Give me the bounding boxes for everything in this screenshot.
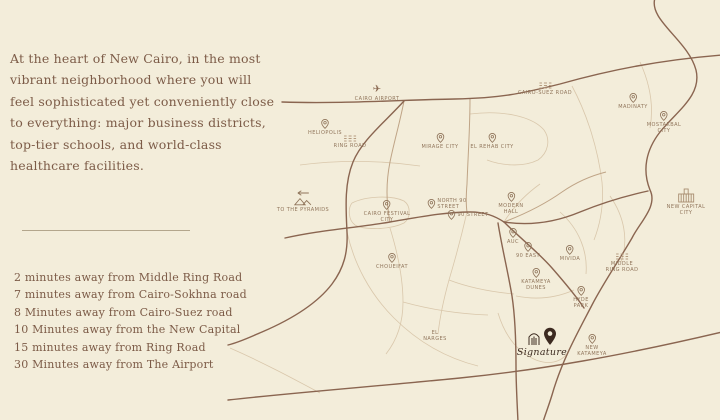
project-name: Signature xyxy=(517,347,567,358)
map-label-text: MIDDLERING ROAD xyxy=(606,261,639,273)
map-label-modern-hall: MODERNHALL xyxy=(498,192,523,215)
location-pin-icon xyxy=(509,228,517,238)
distance-item-3: 10 Minutes away from the New Capital xyxy=(14,321,247,338)
location-pin-icon xyxy=(507,192,515,202)
map-label-mirage-city: MIRAGE CITY xyxy=(421,133,458,150)
location-pin-icon xyxy=(524,242,532,252)
map-label-text: MADINATY xyxy=(618,104,648,110)
road-dashes-icon xyxy=(539,82,552,89)
road-dashes-icon xyxy=(343,135,356,142)
map-label-heliopolis: HELIOPOLIS xyxy=(308,119,342,136)
map-label-hyde-park: HYDEPARK xyxy=(573,286,589,309)
west-arrow-icon xyxy=(296,190,310,196)
location-pin-icon xyxy=(447,210,455,220)
intro-line-1: vibrant neighborhood where you will xyxy=(10,69,274,90)
map-label-text: KATAMEYADUNES xyxy=(521,279,550,291)
distance-item-4: 15 minutes away from Ring Road xyxy=(14,339,247,356)
distance-list: 2 minutes away from Middle Ring Road7 mi… xyxy=(14,269,247,373)
distance-item-0: 2 minutes away from Middle Ring Road xyxy=(14,269,247,286)
intro-line-3: to everything: major business districts, xyxy=(10,112,274,133)
map-label-text: ELNARGES xyxy=(423,330,447,342)
map-label-text: TO THE PYRAMIDS xyxy=(277,207,329,213)
map-label-text: MODERNHALL xyxy=(498,203,523,215)
divider-line xyxy=(22,230,190,231)
intro-line-2: feel sophisticated yet conveniently clos… xyxy=(10,91,274,112)
map-label-text: NEW CAPITALCITY xyxy=(667,204,706,216)
location-pin-icon xyxy=(436,133,444,143)
location-pin-icon xyxy=(488,133,496,143)
intro-paragraph: At the heart of New Cairo, in the mostvi… xyxy=(10,48,274,176)
distance-item-5: 30 Minutes away from The Airport xyxy=(14,356,247,373)
location-pin-icon xyxy=(427,199,435,209)
project-marker: Signature xyxy=(522,327,562,358)
map-label-text: RING ROAD xyxy=(334,143,367,149)
map-label-text: EL REHAB CITY xyxy=(470,144,513,150)
map-label-ring-road: RING ROAD xyxy=(334,135,367,149)
map-label-madinaty: MADINATY xyxy=(618,93,648,110)
map-label-text: CHOUEIFAT xyxy=(376,264,408,270)
location-pin-icon xyxy=(321,119,329,129)
map-label-text: HYDEPARK xyxy=(573,297,589,309)
airplane-icon: ✈ xyxy=(373,85,382,95)
map-label-text: NEWKATAMEYA xyxy=(577,345,606,357)
map-label-text: 90 STREET xyxy=(457,212,488,218)
map-label-text: MOSTAKBALCITY xyxy=(647,122,681,134)
pyramids-icon xyxy=(293,197,312,206)
location-pin-icon xyxy=(566,245,574,255)
intro-line-0: At the heart of New Cairo, in the most xyxy=(10,48,274,69)
map-label-text: 90 EAST xyxy=(516,253,540,259)
distance-item-2: 8 Minutes away from Cairo-Suez road xyxy=(14,304,247,321)
capital-building-icon xyxy=(678,188,695,203)
map-label-text: CAIRO-SUEZ ROAD xyxy=(518,90,572,96)
signature-emblem-icon xyxy=(528,331,540,346)
project-pin-icon xyxy=(543,327,557,346)
intro-line-5: healthcare facilities. xyxy=(10,155,274,176)
map-label-north-90-street: NORTH 90STREET xyxy=(427,198,466,210)
location-pin-icon xyxy=(388,253,396,263)
map-label-text: NORTH 90STREET xyxy=(437,198,466,210)
map-label-middle-ring-road: MIDDLERING ROAD xyxy=(606,253,639,273)
project-marker-icons xyxy=(528,327,557,346)
location-pin-icon xyxy=(383,200,391,210)
location-pin-icon xyxy=(660,111,668,121)
map-label-90-street: 90 STREET xyxy=(447,210,488,220)
map-label-to-the-pyramids: TO THE PYRAMIDS xyxy=(277,190,329,213)
map-label-text: CAIRO AIRPORT xyxy=(355,96,400,102)
location-pin-icon xyxy=(588,334,596,344)
map-label-text: CAIRO FESTIVALCITY xyxy=(364,211,411,223)
map-label-new-capital-city: NEW CAPITALCITY xyxy=(667,188,706,216)
map-label-cairo-festival-city: CAIRO FESTIVALCITY xyxy=(364,200,411,223)
intro-line-4: top-tier schools, and world-class xyxy=(10,134,274,155)
map-label-el-rehab-city: EL REHAB CITY xyxy=(470,133,513,150)
map-label-cairo-suez-road: CAIRO-SUEZ ROAD xyxy=(518,82,572,96)
map-label-mivida: MIVIDA xyxy=(560,245,581,262)
map-label-text: MIVIDA xyxy=(560,256,581,262)
location-pin-icon xyxy=(532,268,540,278)
road-dashes-icon xyxy=(615,253,628,260)
map-label-mostakbal-city: MOSTAKBALCITY xyxy=(647,111,681,134)
map-label-katameya-dunes: KATAMEYADUNES xyxy=(521,268,550,291)
location-pin-icon xyxy=(577,286,585,296)
map-label-90-east: 90 EAST xyxy=(516,242,540,259)
map-label-el-narges: ELNARGES xyxy=(423,330,447,342)
location-pin-icon xyxy=(629,93,637,103)
map-label-text: MIRAGE CITY xyxy=(421,144,458,150)
distance-item-1: 7 minutes away from Cairo-Sokhna road xyxy=(14,286,247,303)
brochure-page: At the heart of New Cairo, in the mostvi… xyxy=(0,0,720,420)
map-label-new-katameya: NEWKATAMEYA xyxy=(577,334,606,357)
map-label-cairo-airport: ✈CAIRO AIRPORT xyxy=(355,85,400,102)
map-label-choueifat: CHOUEIFAT xyxy=(376,253,408,270)
